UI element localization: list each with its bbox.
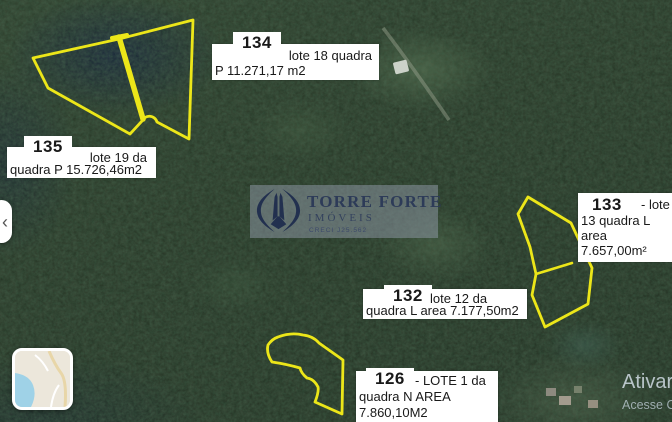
- lot-area: 7.657,00m²: [581, 243, 647, 258]
- lot-label-126: 126 - LOTE 1 da quadra N AREA 7.860,10M2: [356, 371, 498, 422]
- lot-text: - lote: [641, 197, 670, 212]
- lot-number: 134: [233, 32, 281, 54]
- minimap-toggle[interactable]: [12, 348, 73, 410]
- windows-activation-title: Ativar: [622, 371, 672, 394]
- lot-area: quadra L area 7.177,50m2: [366, 303, 519, 318]
- lot-text: 13 quadra L: [581, 213, 650, 228]
- brand-registration: CRECI J25.562: [309, 227, 367, 234]
- lot-label-132: 132 lote 12 da quadra L area 7.177,50m2: [363, 289, 527, 319]
- brand-subtitle: IMÓVEIS: [308, 212, 375, 224]
- lot-label-134: 134 lote 18 quadra P 11.271,17 m2: [212, 44, 379, 80]
- prev-photo-button[interactable]: ‹: [0, 200, 12, 243]
- windows-activation-subtitle: Acesse C: [622, 398, 672, 412]
- lot-label-135: 135 lote 19 da quadra P 15.726,46m2: [7, 147, 156, 178]
- lot-number: 135: [24, 136, 72, 158]
- lot-number: 126: [366, 368, 414, 390]
- chevron-left-icon: ‹: [2, 212, 8, 232]
- minimap-preview: [15, 351, 70, 407]
- lot-area: quadra P 15.726,46m2: [10, 162, 142, 177]
- lot-text: lote 18 quadra: [289, 48, 372, 63]
- lot-area: P 11.271,17 m2: [215, 63, 306, 78]
- lot-text: area: [581, 228, 607, 243]
- lot-text: quadra N AREA: [359, 389, 451, 404]
- lot-label-133: 133 - lote 13 quadra L area 7.657,00m²: [578, 193, 672, 262]
- listing-photo-viewer: TORRE FORTE IMÓVEIS CRECI J25.562 134 lo…: [0, 0, 672, 422]
- lot-text: - LOTE 1 da: [415, 373, 486, 388]
- lot-area: 7.860,10M2: [359, 405, 428, 420]
- brand-name: TORRE FORTE: [307, 192, 443, 212]
- brand-watermark: TORRE FORTE IMÓVEIS CRECI J25.562: [250, 185, 438, 238]
- torre-forte-logo-icon: [255, 188, 302, 235]
- windows-activation-watermark: Ativar Acesse C: [622, 371, 672, 412]
